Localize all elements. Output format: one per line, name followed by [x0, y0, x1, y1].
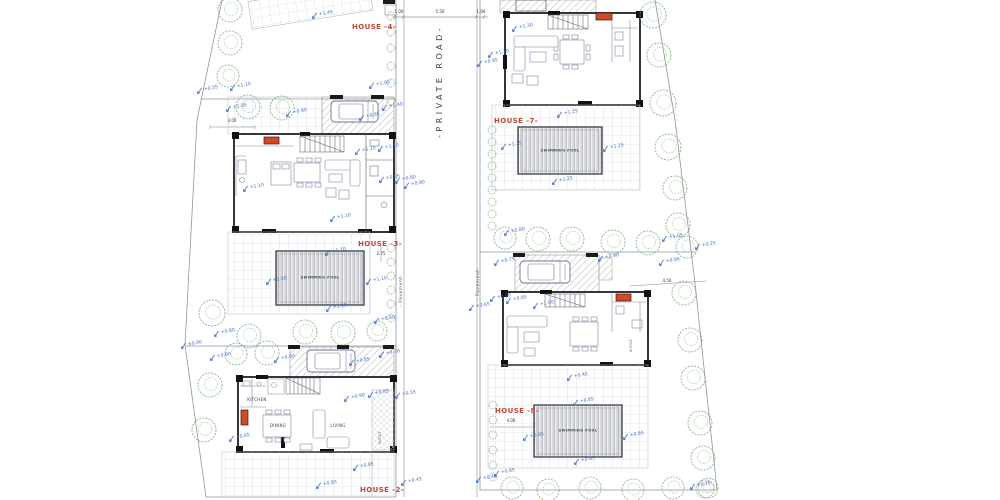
tree-icon — [293, 320, 317, 344]
bush-icon — [488, 222, 496, 230]
tree-icon — [537, 479, 559, 500]
house-8-plan — [488, 253, 651, 468]
dining-set — [263, 410, 291, 442]
tree-icon — [494, 227, 516, 249]
tree-icon — [672, 281, 696, 305]
bush-icon — [488, 210, 496, 218]
tree-icon — [696, 480, 714, 498]
bush-icon — [387, 258, 395, 266]
dining-set — [570, 317, 598, 351]
tree-icon — [647, 43, 671, 67]
car-icon — [307, 350, 355, 372]
tree-icon — [579, 477, 601, 499]
tree-icon — [367, 321, 387, 341]
stove-icon — [264, 137, 279, 144]
tree-icon — [640, 2, 666, 28]
bush-icon — [489, 473, 497, 481]
house-7-plan — [492, 0, 643, 190]
tree-icon — [199, 300, 225, 326]
tree-icon — [237, 324, 261, 348]
tree-icon — [636, 231, 660, 255]
bush-icon — [387, 286, 395, 294]
house-3-plan — [228, 95, 396, 314]
bush-icon — [387, 28, 395, 36]
site-plan-drawing — [0, 0, 1000, 500]
bush-icon — [387, 62, 395, 70]
tree-icon — [662, 477, 684, 499]
tree-icon — [198, 373, 222, 397]
bedroom-furniture — [271, 162, 291, 185]
tree-icon — [676, 236, 698, 258]
tree-icon — [218, 31, 242, 55]
tree-icon — [501, 477, 523, 499]
swimming-pool — [518, 127, 602, 174]
swimming-pool — [276, 251, 364, 305]
tree-icon — [655, 134, 681, 160]
tree-icon — [622, 479, 644, 500]
private-road-edges — [392, 0, 488, 497]
tree-icon — [691, 446, 715, 470]
car-icon — [520, 261, 570, 283]
house-4-patio — [248, 0, 396, 29]
bush-icon — [387, 314, 395, 322]
stove-icon — [616, 294, 631, 301]
bush-icon — [387, 244, 395, 252]
house-2-plan — [222, 345, 397, 497]
site-plan-canvas: HOUSE -4- HOUSE -3- HOUSE -2- HOUSE -7- … — [0, 0, 1000, 500]
bush-icon — [488, 198, 496, 206]
tree-icon — [560, 227, 584, 251]
tree-icon — [255, 341, 279, 365]
tree-icon — [678, 328, 702, 352]
tree-icon — [601, 230, 625, 254]
bush-icon — [387, 44, 395, 52]
stove-icon — [596, 13, 612, 20]
tree-icon — [666, 213, 690, 237]
tree-icon — [217, 65, 239, 87]
stove-icon — [241, 410, 248, 425]
tree-icon — [681, 366, 705, 390]
swimming-pool — [534, 405, 622, 457]
car-icon — [331, 101, 378, 122]
bush-icon — [387, 272, 395, 280]
tree-icon — [688, 411, 712, 435]
tree-icon — [331, 321, 355, 345]
bush-icon — [387, 300, 395, 308]
tree-icon — [526, 227, 550, 251]
bush-icon — [387, 79, 395, 87]
